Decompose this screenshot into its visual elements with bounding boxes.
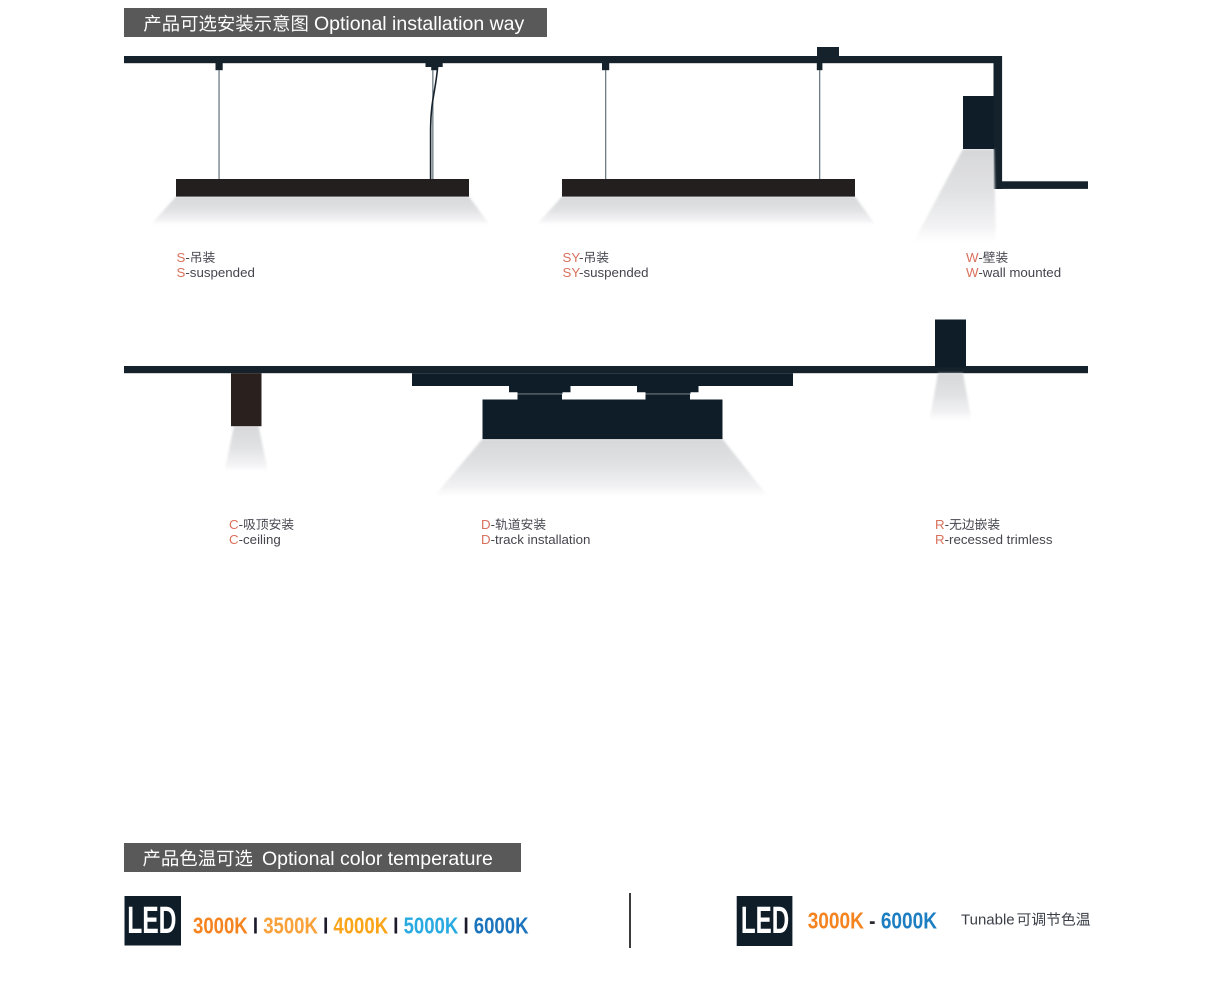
svg-text:SY-suspended: SY-suspended (563, 265, 649, 280)
svg-text:3000K - 6000K: 3000K - 6000K (808, 908, 937, 934)
svg-text:Optional color temperature: Optional color temperature (262, 848, 493, 870)
svg-text:SY-: SY- (563, 250, 584, 265)
svg-text:C-ceiling: C-ceiling (229, 532, 281, 547)
svg-text:LED: LED (741, 899, 789, 941)
svg-text:D-: D- (481, 517, 495, 532)
svg-text:W-wall mounted: W-wall mounted (966, 265, 1061, 280)
svg-text:Tunable: Tunable (961, 912, 1015, 929)
svg-text:R-recessed trimless: R-recessed trimless (935, 532, 1053, 547)
svg-text:LED: LED (127, 899, 176, 941)
svg-text:C-: C- (229, 517, 243, 532)
svg-text:D-track installation: D-track installation (481, 532, 590, 547)
svg-text:Optional installation way: Optional installation way (314, 13, 525, 35)
svg-text:R-: R- (935, 517, 949, 532)
svg-text:W-: W- (966, 250, 983, 265)
svg-text:3000K I 3500K I 4000K I 5000K: 3000K I 3500K I 4000K I 5000K I 6000K (193, 912, 529, 938)
svg-text:S-suspended: S-suspended (177, 265, 255, 280)
svg-text:S-: S- (177, 250, 190, 265)
